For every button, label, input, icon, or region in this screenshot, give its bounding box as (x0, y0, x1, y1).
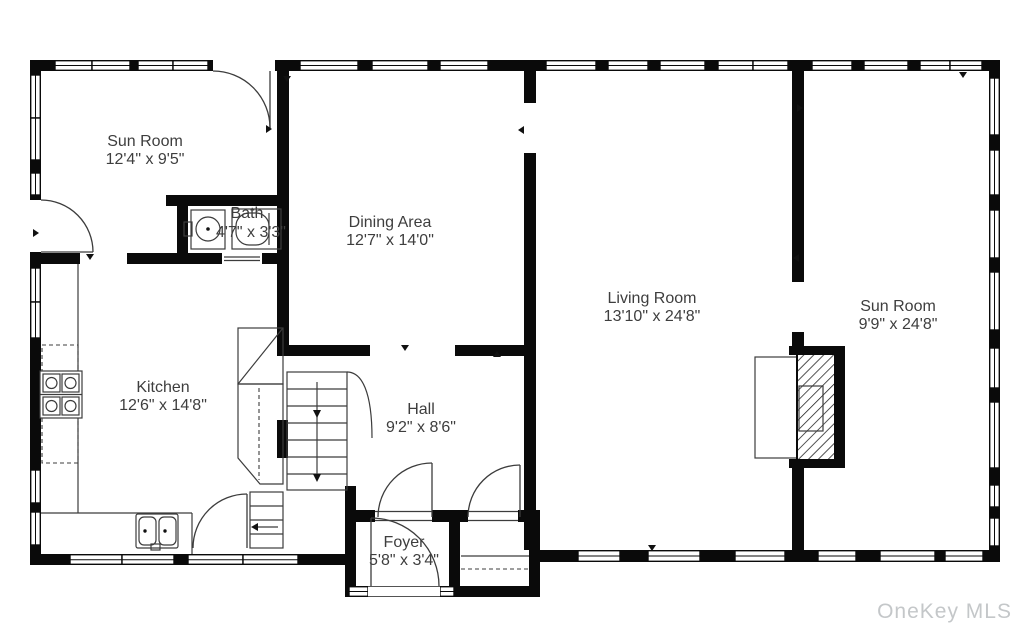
room-dims: 9'9" x 24'8" (859, 316, 938, 333)
hall-foyer-door (378, 463, 432, 517)
hall-closet-door (468, 465, 520, 517)
floor-plan: Sun Room 12'4" x 9'5" Bath 4'7" x 3'3" D… (0, 0, 1024, 626)
room-label-sun-room-right: Sun Room 9'9" x 24'8" (859, 298, 938, 333)
fireplace-hearth (755, 357, 797, 458)
room-label-hall: Hall 9'2" x 8'6" (386, 401, 456, 436)
kitchen-cabinet (238, 328, 283, 484)
fireplace (755, 346, 845, 468)
room-name: Dining Area (349, 214, 432, 231)
room-name: Bath (231, 205, 264, 222)
room-name: Sun Room (107, 133, 183, 150)
room-dims: 4'7" x 3'3" (216, 224, 286, 241)
room-name: Sun Room (860, 298, 936, 315)
entry-closet (461, 556, 529, 569)
stove (40, 371, 82, 418)
kitchen-sink (136, 514, 178, 550)
floor-plan-page: Sun Room 12'4" x 9'5" Bath 4'7" x 3'3" D… (0, 0, 1024, 626)
sunroom-exterior-door (213, 71, 270, 128)
room-dims: 9'2" x 8'6" (386, 419, 456, 436)
room-name: Hall (407, 401, 435, 418)
room-label-living-room: Living Room 13'10" x 24'8" (604, 290, 701, 325)
room-dims: 5'8" x 3'4" (369, 552, 439, 569)
room-dims: 12'7" x 14'0" (346, 232, 434, 249)
kitchen-door (193, 494, 247, 548)
watermark: OneKey MLS (877, 600, 1012, 623)
room-name: Living Room (608, 290, 697, 307)
room-label-dining-area: Dining Area 12'7" x 14'0" (346, 214, 434, 249)
room-label-kitchen: Kitchen 12'6" x 14'8" (119, 379, 207, 414)
room-dims: 12'6" x 14'8" (119, 397, 207, 414)
sunroom-side-door (41, 200, 93, 252)
room-name: Kitchen (136, 379, 189, 396)
basement-steps (250, 492, 283, 548)
room-label-foyer: Foyer 5'8" x 3'4" (369, 534, 439, 569)
room-dims: 12'4" x 9'5" (106, 151, 185, 168)
room-label-sun-room-left: Sun Room 12'4" x 9'5" (106, 133, 185, 168)
room-dims: 13'10" x 24'8" (604, 308, 701, 325)
stair-winder-curve (347, 372, 372, 438)
fireplace-firebox (797, 352, 835, 464)
room-name: Foyer (384, 534, 426, 551)
room-label-bath: Bath 4'7" x 3'3" (216, 205, 286, 241)
